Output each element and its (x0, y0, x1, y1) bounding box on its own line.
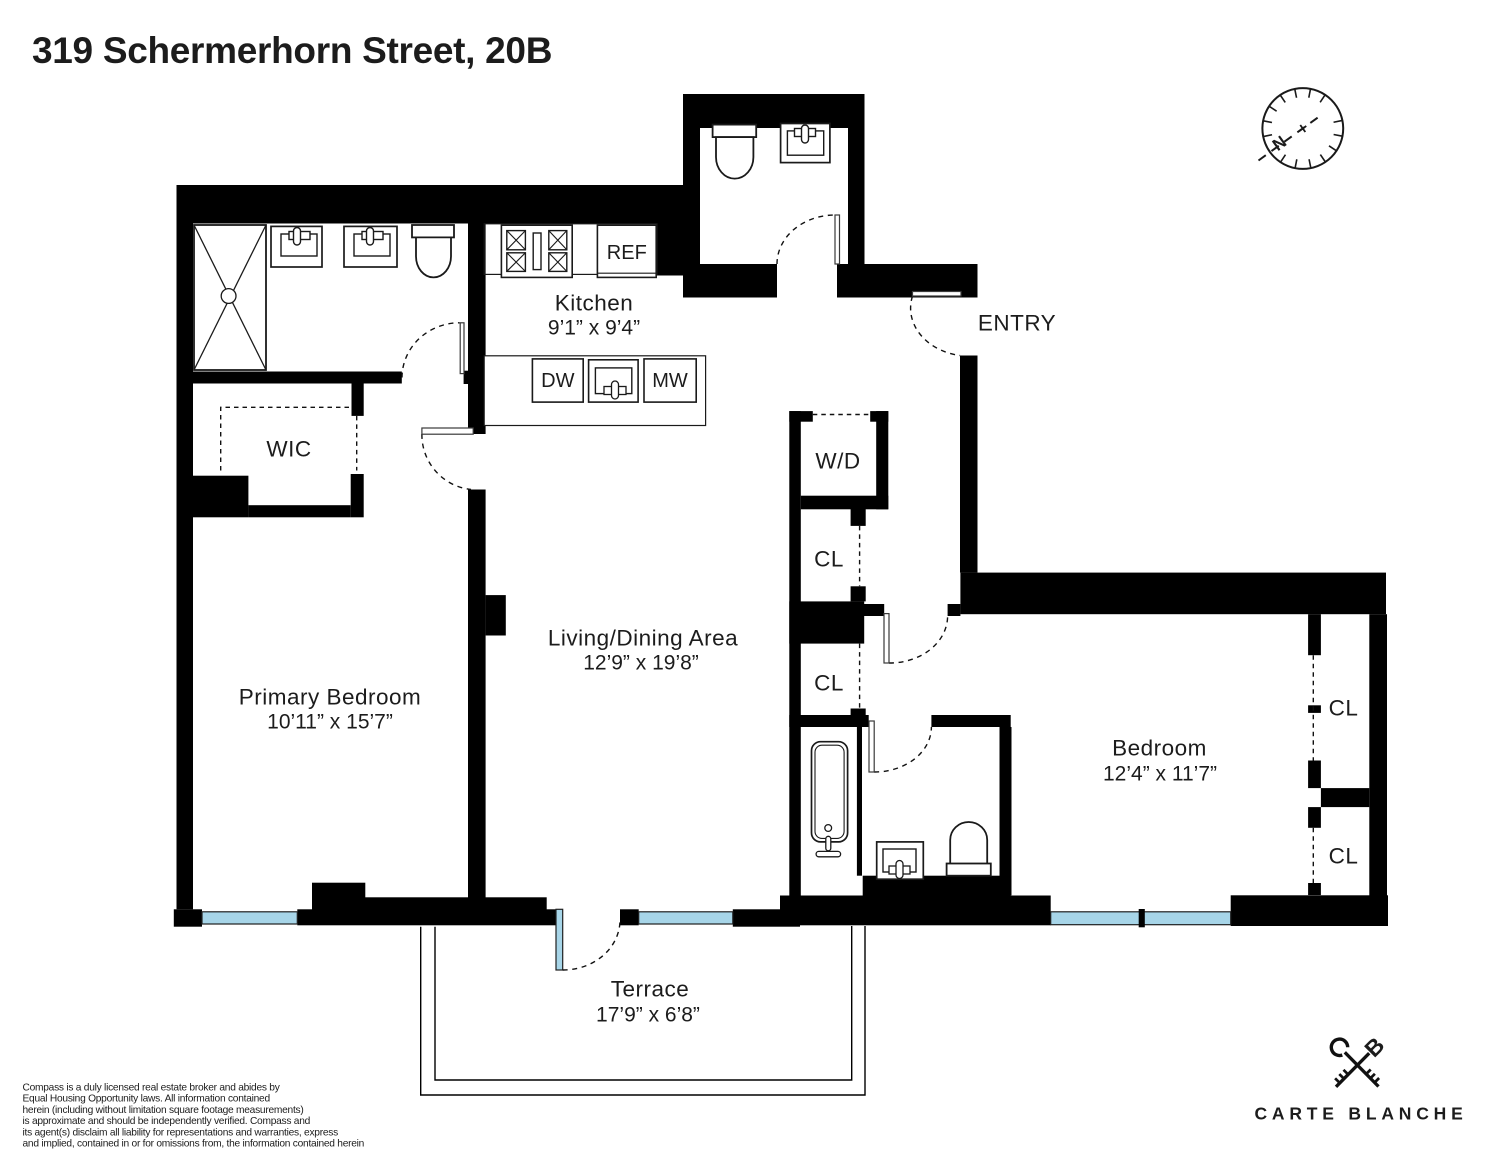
svg-text:is approximate and should be: is approximate and should be independent… (23, 1116, 311, 1127)
svg-text:Living/Dining Area: Living/Dining Area (548, 626, 738, 651)
svg-text:Compass is a duly licensed rea: Compass is a duly licensed real estate b… (23, 1083, 281, 1094)
svg-text:CARTE BLANCHE: CARTE BLANCHE (1254, 1104, 1467, 1124)
svg-text:CL: CL (1329, 844, 1359, 869)
svg-text:10’11” x 15’7”: 10’11” x 15’7” (267, 711, 393, 734)
svg-text:DW: DW (541, 370, 574, 392)
svg-text:WIC: WIC (266, 437, 311, 462)
svg-text:Kitchen: Kitchen (555, 291, 634, 316)
svg-text:W/D: W/D (815, 449, 860, 474)
svg-text:Terrace: Terrace (611, 977, 690, 1002)
svg-text:319 Schermerhorn Street, 20B: 319 Schermerhorn Street, 20B (32, 30, 552, 71)
svg-text:and implied, contained in or f: and implied, contained in or for omissio… (23, 1139, 365, 1150)
svg-text:CL: CL (814, 547, 844, 572)
svg-text:its agent(s) disclaim all liab: its agent(s) disclaim all liability for … (23, 1127, 339, 1138)
svg-text:17’9” x 6’8”: 17’9” x 6’8” (596, 1004, 700, 1027)
svg-text:CL: CL (1329, 696, 1359, 721)
svg-text:ENTRY: ENTRY (978, 311, 1056, 336)
svg-text:12’4” x 11’7”: 12’4” x 11’7” (1103, 763, 1217, 786)
svg-text:Primary Bedroom: Primary Bedroom (239, 685, 422, 710)
svg-text:herein (including without limi: herein (including without limitation squ… (23, 1105, 304, 1116)
svg-text:CL: CL (814, 671, 844, 696)
svg-text:REF: REF (607, 242, 647, 264)
svg-text:Equal Housing Opportunity laws: Equal Housing Opportunity laws. All info… (23, 1094, 271, 1105)
svg-text:12’9” x 19’8”: 12’9” x 19’8” (583, 652, 699, 675)
svg-text:9’1” x 9’4”: 9’1” x 9’4” (548, 317, 640, 340)
svg-text:Bedroom: Bedroom (1112, 736, 1207, 761)
svg-text:MW: MW (652, 370, 688, 392)
